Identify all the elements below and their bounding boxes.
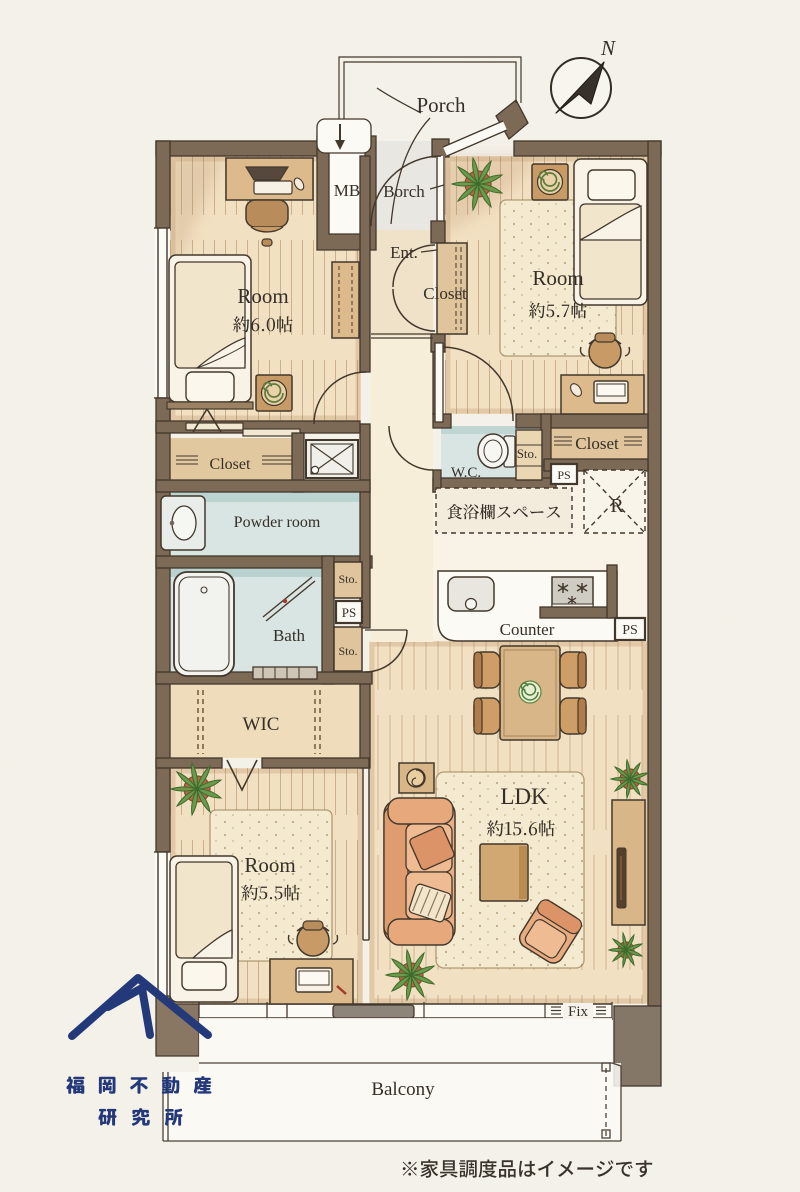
svg-text:Fix: Fix (568, 1004, 589, 1020)
svg-text:Closet: Closet (575, 434, 619, 453)
svg-text:Bath: Bath (273, 626, 306, 645)
svg-text:R: R (610, 495, 624, 517)
svg-text:Ent.: Ent. (390, 243, 418, 262)
svg-text:Borch: Borch (383, 182, 425, 201)
svg-text:Sto.: Sto. (338, 644, 357, 658)
svg-text:PS: PS (342, 605, 356, 620)
svg-text:Porch: Porch (417, 93, 466, 117)
svg-text:Room: Room (244, 853, 295, 877)
svg-text:PS: PS (557, 468, 570, 482)
svg-text:W.C.: W.C. (451, 465, 481, 481)
svg-text:PS: PS (622, 623, 638, 638)
svg-text:Closet: Closet (423, 284, 467, 303)
svg-text:Room: Room (532, 266, 583, 290)
svg-text:LDK: LDK (500, 784, 548, 809)
svg-text:Sto.: Sto. (517, 446, 538, 461)
svg-text:Counter: Counter (500, 620, 555, 639)
svg-text:Sto.: Sto. (338, 572, 357, 586)
svg-text:Powder room: Powder room (234, 514, 321, 531)
svg-text:N: N (600, 36, 616, 60)
svg-text:Room: Room (237, 284, 288, 308)
svg-text:WIC: WIC (243, 714, 280, 735)
svg-text:Closet: Closet (210, 456, 251, 473)
svg-text:MB: MB (334, 181, 360, 200)
svg-text:Balcony: Balcony (371, 1079, 435, 1100)
